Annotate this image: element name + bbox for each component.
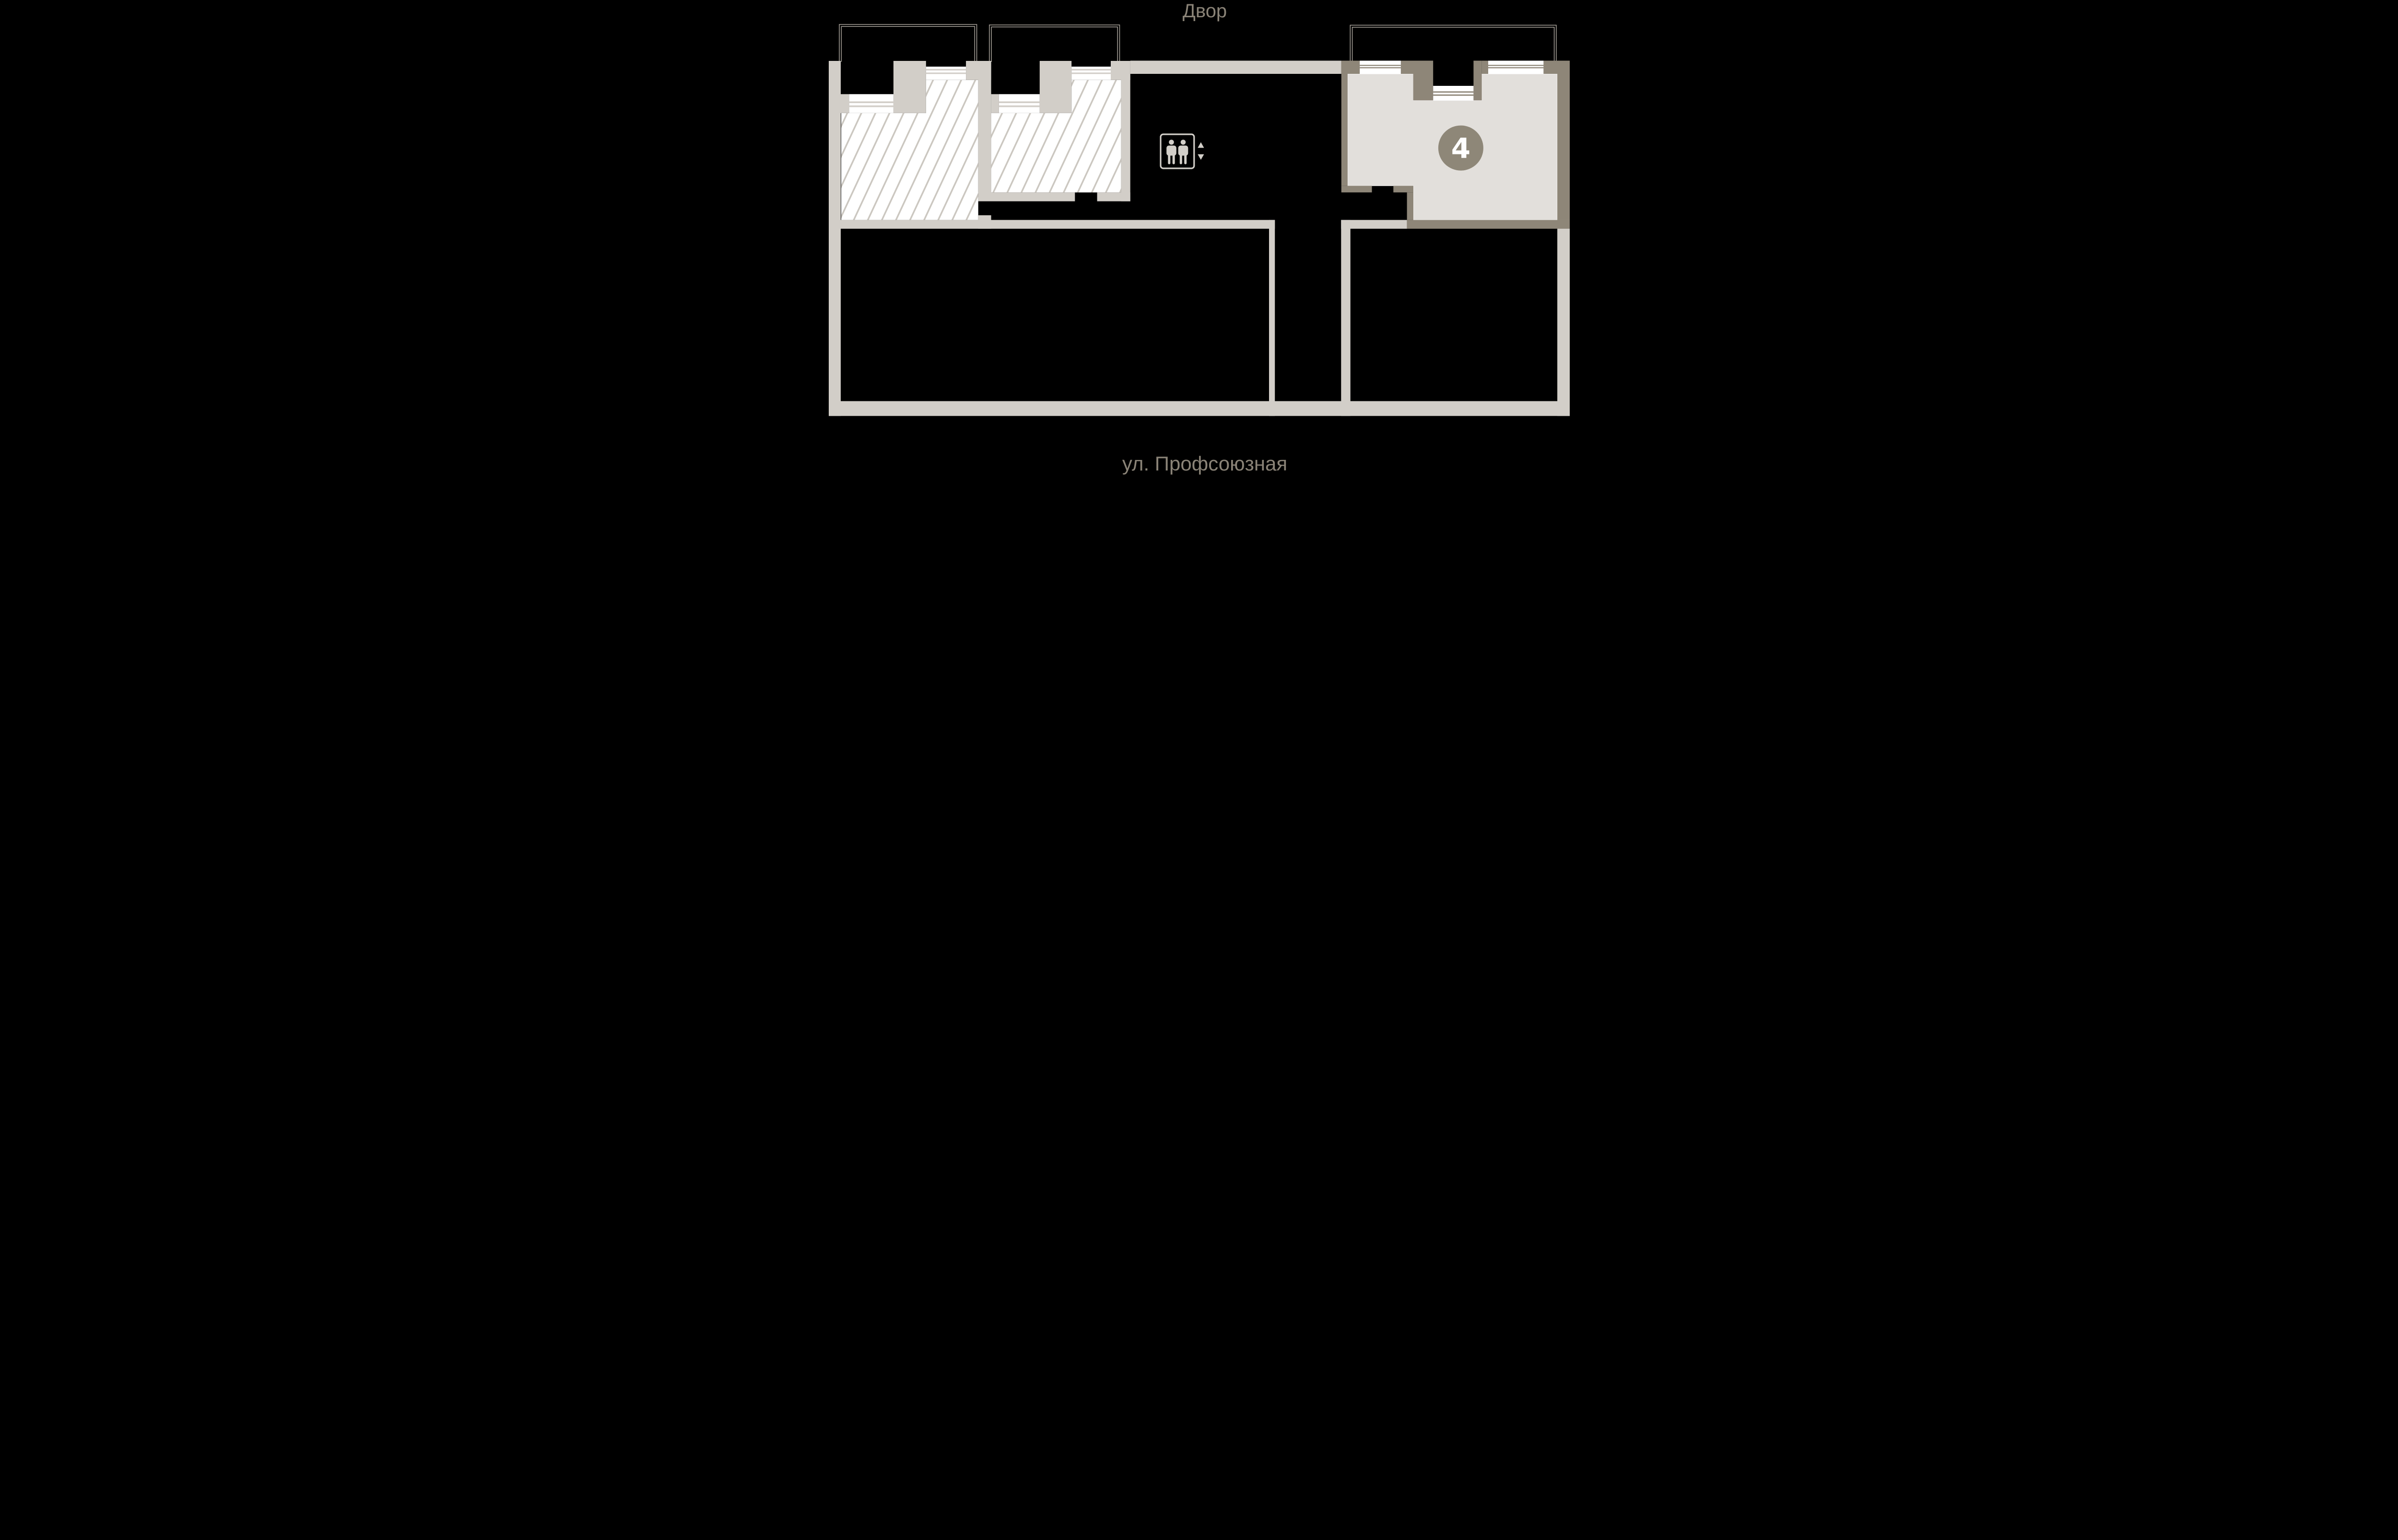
glazing-line	[1488, 65, 1543, 66]
window-glass	[1433, 86, 1473, 100]
person-icon	[1178, 140, 1188, 164]
glazing-line	[999, 101, 1039, 103]
glazing-line	[926, 72, 965, 74]
wall-top-band-centre	[1130, 61, 1341, 74]
apartment-4[interactable]: 4	[1341, 61, 1569, 229]
wall-apt2-bottom-left	[978, 192, 1075, 201]
window-apt4-recess	[1433, 86, 1473, 100]
glazing-line	[1433, 91, 1473, 93]
glazing-line	[1360, 67, 1401, 68]
window-apt4-left	[1360, 61, 1401, 74]
wall-segment	[841, 94, 849, 113]
glazing-line	[1433, 94, 1473, 96]
window-apt1-left	[849, 94, 893, 113]
glazing-line	[849, 101, 893, 103]
floor-plan-page: { "scene": { "description": "Residential…	[0, 0, 2398, 475]
unit-number: 4	[1451, 132, 1470, 165]
window-apt4-right	[1488, 61, 1543, 74]
courtyard-label: Двор	[1182, 0, 1226, 22]
window-glass	[999, 94, 1039, 113]
wall-corridor-right	[1341, 220, 1407, 229]
glazing-line	[1071, 69, 1111, 71]
apt4-recess-wall-right	[1473, 61, 1481, 101]
elevator-icon	[1161, 134, 1204, 168]
apt4-wall-top	[1400, 61, 1413, 74]
floor-plan-canvas: Двор	[829, 0, 1570, 475]
apt4-wall-bottom	[1407, 220, 1569, 229]
window-apt2-left	[999, 94, 1039, 113]
glazing-line	[926, 69, 965, 71]
window-apt2-right	[1071, 67, 1111, 80]
window-glass	[849, 94, 893, 113]
glazing-line	[1071, 72, 1111, 74]
apt4-wall-notch-down	[1407, 192, 1413, 220]
wall-room-divider-2	[1341, 220, 1350, 416]
wall-apt2-bottom-right	[1097, 192, 1130, 201]
wall-right-outer-lower	[1557, 220, 1570, 416]
apt4-recess-wall-left	[1413, 61, 1433, 101]
arrow-down-icon	[1198, 154, 1204, 160]
elevator-cab-outline	[1161, 134, 1194, 168]
wall-segment	[1039, 61, 1071, 113]
person-icon	[1166, 140, 1176, 164]
wall-apt2-right	[1121, 61, 1130, 201]
glazing-line	[849, 106, 893, 107]
wall-left-outer	[829, 61, 841, 416]
balcony-outline-2	[989, 25, 1119, 62]
balcony-outline-3	[1350, 25, 1556, 61]
unit-number-badge[interactable]: 4	[1438, 126, 1483, 171]
apt4-wall-right	[1557, 61, 1570, 220]
glazing-line	[1488, 67, 1543, 68]
apt4-wall-top	[1481, 61, 1488, 74]
balcony-outline-1	[839, 24, 977, 62]
street-label: ул. Профсоюзная	[1122, 452, 1287, 475]
apt4-wall-notch-b	[1393, 186, 1413, 192]
apt4-wall-notch-a	[1341, 186, 1372, 192]
apt4-wall-left	[1341, 61, 1347, 186]
wall-party-apt1	[978, 61, 991, 193]
glazing-line	[1360, 65, 1401, 66]
wall-corridor-left	[829, 220, 1275, 229]
window-apt1-right	[926, 67, 965, 80]
wall-segment	[893, 61, 926, 113]
wall-bottom-street	[829, 401, 1570, 416]
wall-room-divider-1	[1269, 220, 1275, 416]
wall-segment	[991, 94, 999, 113]
glazing-line	[999, 106, 1039, 107]
up-down-arrows-icon	[1198, 142, 1204, 160]
arrow-up-icon	[1198, 142, 1204, 148]
